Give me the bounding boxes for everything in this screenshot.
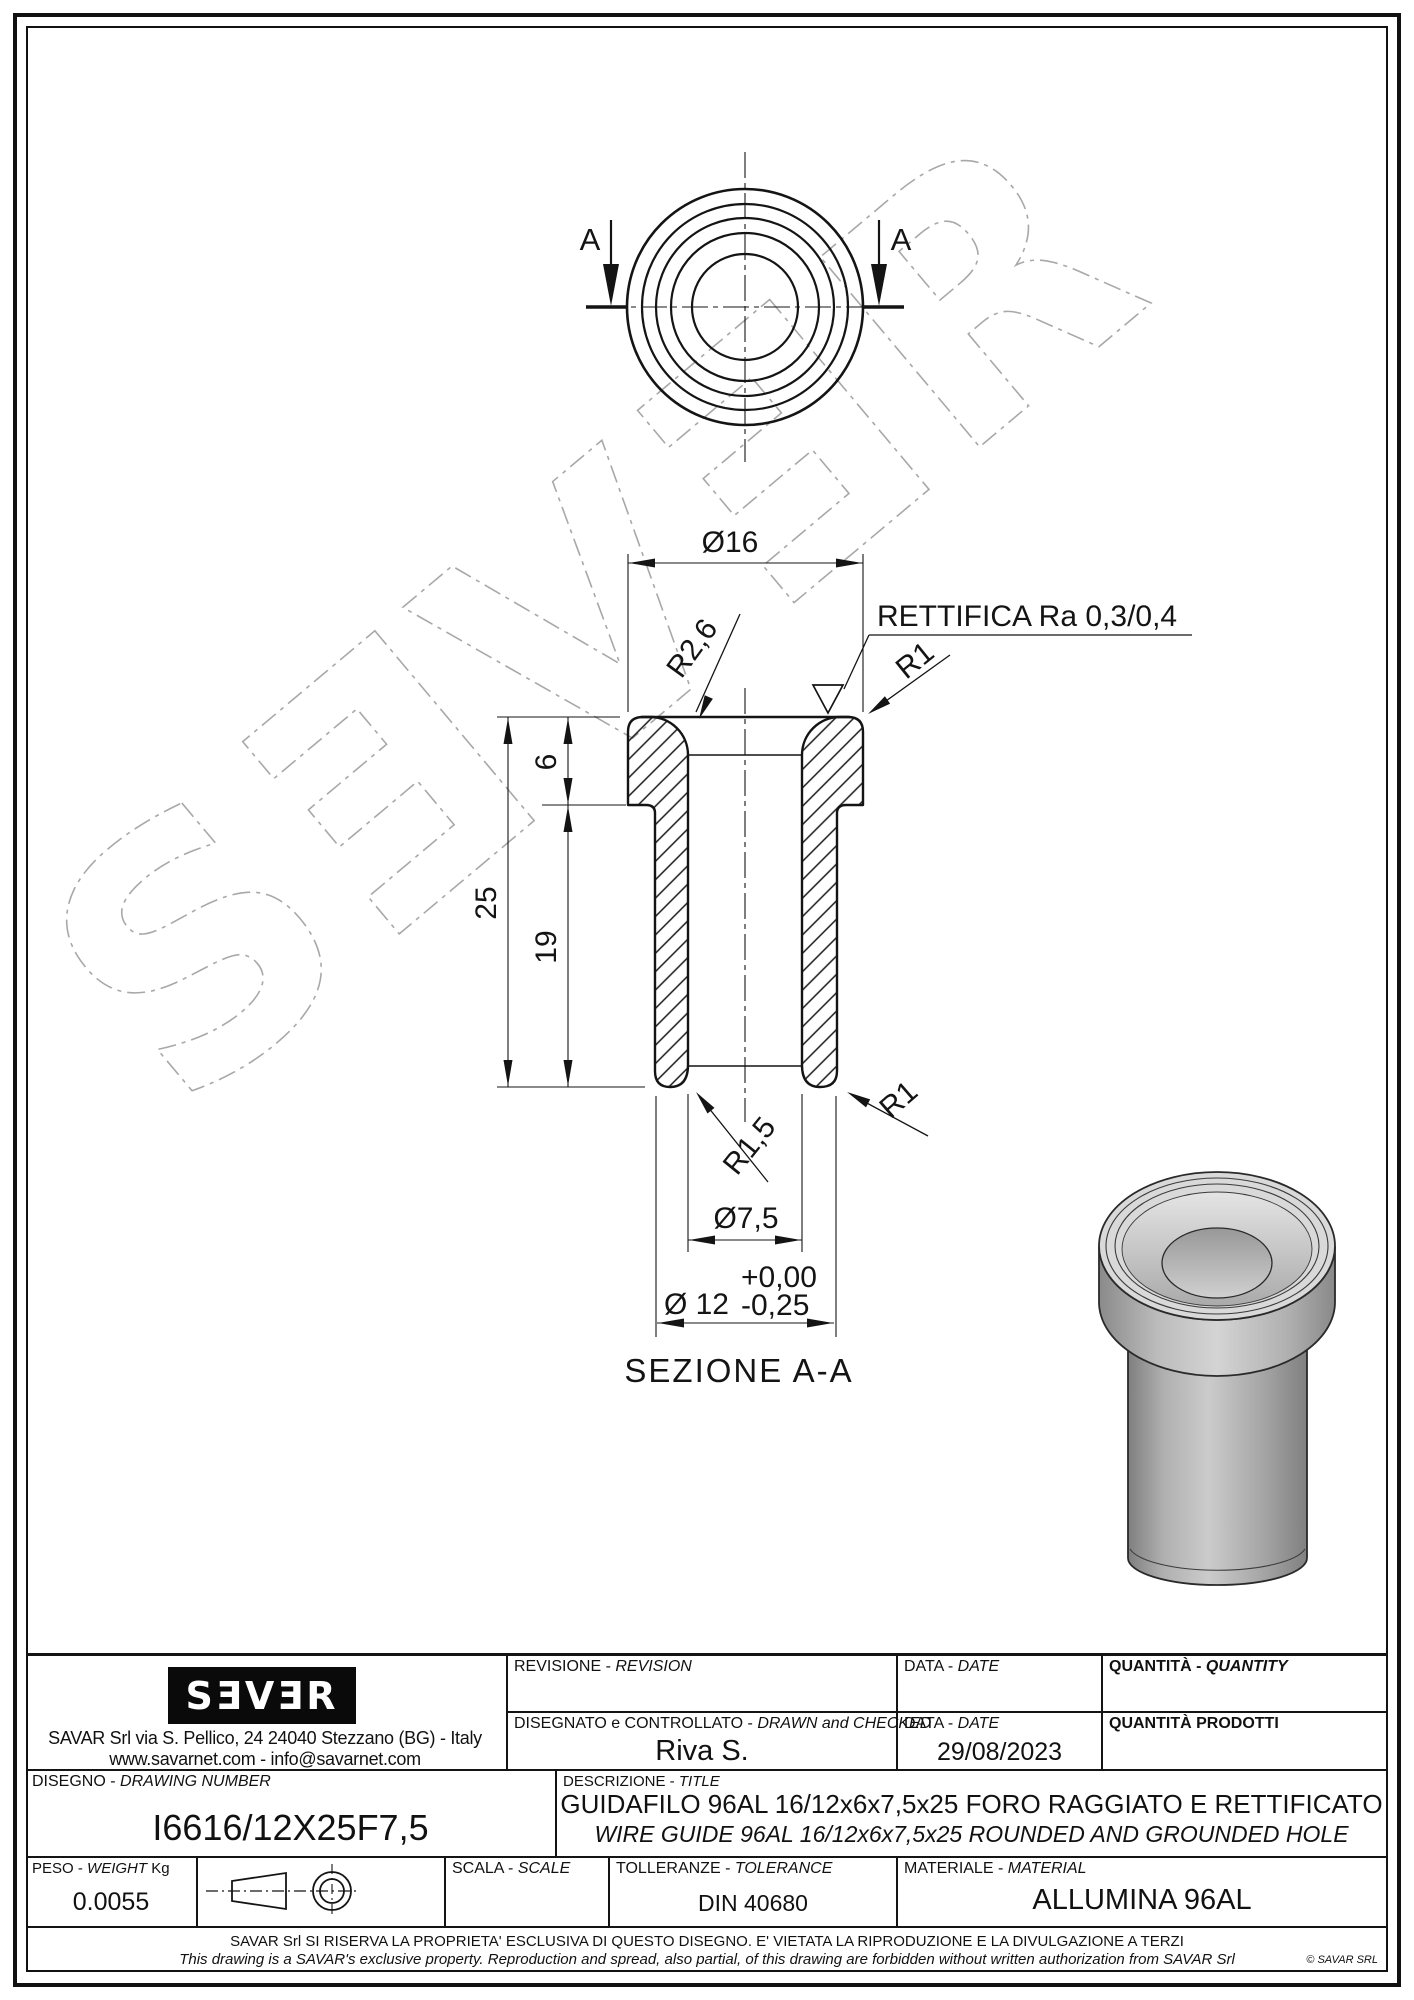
date-top-label: DATA - DATE [904, 1658, 999, 1676]
dim-6-label: 6 [530, 754, 563, 771]
radius-r1-top-label: R1 [890, 636, 941, 686]
drawing-number-cell: DISEGNO - DRAWING NUMBER I6616/12X25F7,5 [26, 1771, 557, 1858]
material-value: ALLUMINA 96AL [898, 1884, 1386, 1917]
leader-r1-5: R1,5 [696, 1092, 782, 1182]
description-label: DESCRIZIONE - TITLE [563, 1773, 720, 1790]
surface-note-text: RETTIFICA Ra 0,3/0,4 [877, 600, 1177, 633]
description-value-it: GUIDAFILO 96AL 16/12x6x7,5x25 FORO RAGGI… [557, 1789, 1386, 1820]
radius-r15-label: R1,5 [717, 1111, 783, 1181]
date-value: 29/08/2023 [898, 1738, 1101, 1767]
material-cell: MATERIALE - MATERIAL ALLUMINA 96AL [898, 1858, 1388, 1928]
tolerance-minus-label: -0,25 [741, 1289, 809, 1322]
description-value-en: WIRE GUIDE 96AL 16/12x6x7,5x25 ROUNDED A… [557, 1821, 1386, 1848]
weight-cell: PESO - WEIGHT Kg 0.0055 [26, 1858, 198, 1928]
company-cell: SƎVƎR SAVAR Srl via S. Pellico, 24 24040… [26, 1656, 508, 1771]
dim-diameter-75-label: Ø7,5 [713, 1202, 778, 1235]
cut-label-left: A [580, 222, 601, 257]
drawn-checked-cell: DISEGNATO e CONTROLLATO - DRAWN and CHEC… [508, 1713, 898, 1771]
cut-label-right: A [891, 222, 912, 257]
dim-25-label: 25 [470, 886, 503, 919]
scale-cell: SCALA - SCALE [446, 1858, 610, 1928]
dim-diameter-16-label: Ø16 [702, 526, 759, 559]
disclaimer-italian: SAVAR Srl SI RISERVA LA PROPRIETA' ESCLU… [26, 1933, 1388, 1950]
render-hole [1162, 1228, 1272, 1298]
section-left-wall [628, 717, 688, 1087]
weight-label: PESO - WEIGHT Kg [32, 1860, 170, 1877]
surface-finish-icon [813, 685, 843, 713]
copyright-note: © SAVAR SRL [1306, 1954, 1378, 1966]
scale-label: SCALA - SCALE [452, 1860, 570, 1878]
material-label: MATERIALE - MATERIAL [904, 1860, 1087, 1878]
tolerance-cell: TOLLERANZE - TOLERANCE DIN 40680 [610, 1858, 898, 1928]
revision-cell: REVISIONE - REVISION [508, 1656, 898, 1713]
leader-r1-bottom: R1 [847, 1075, 928, 1136]
disclaimer-row: SAVAR Srl SI RISERVA LA PROPRIETA' ESCLU… [26, 1928, 1388, 1975]
description-cell: DESCRIZIONE - TITLE GUIDAFILO 96AL 16/12… [557, 1771, 1388, 1858]
first-angle-projection-icon [198, 1858, 442, 1924]
section-caption: SEZIONE A-A [624, 1352, 853, 1389]
disclaimer-english: This drawing is a SAVAR's exclusive prop… [26, 1951, 1388, 1968]
section-right-wall [802, 717, 863, 1087]
drawing-number-value: I6616/12X25F7,5 [26, 1807, 555, 1849]
part-3d-render [1099, 1172, 1335, 1585]
drawn-checked-value: Riva S. [508, 1735, 896, 1768]
dim-diameter-12-label: Ø 12 [664, 1288, 729, 1321]
engineering-drawing-page: { "page": { "watermark_text": "SƎVƎR" },… [0, 0, 1414, 2000]
tolerance-label: TOLLERANZE - TOLERANCE [616, 1860, 832, 1878]
savar-logo-text: SƎVƎR [186, 1674, 339, 1718]
drawn-checked-label: DISEGNATO e CONTROLLATO - DRAWN and CHEC… [514, 1715, 931, 1733]
company-contacts: www.savarnet.com - info@savarnet.com [26, 1749, 504, 1770]
date-cell-top: DATA - DATE [898, 1656, 1103, 1713]
date-cell-bottom: DATA - DATE 29/08/2023 [898, 1713, 1103, 1771]
savar-logo: SƎVƎR [168, 1667, 356, 1724]
dim-19-label: 19 [530, 930, 563, 963]
tolerance-value: DIN 40680 [610, 1890, 896, 1917]
section-arrow-left [603, 264, 619, 306]
drawing-canvas: SƎVƎR A A [0, 0, 1414, 1650]
title-block: SƎVƎR SAVAR Srl via S. Pellico, 24 24040… [26, 1653, 1388, 1972]
quantity-produced-cell: QUANTITÀ PRODOTTI [1103, 1713, 1388, 1771]
quantity-label: QUANTITÀ - QUANTITY [1109, 1658, 1288, 1676]
projection-symbol-cell [198, 1858, 446, 1928]
revision-label: REVISIONE - REVISION [514, 1658, 692, 1676]
radius-r1-bottom-label: R1 [873, 1075, 924, 1125]
date-bottom-label: DATA - DATE [904, 1715, 999, 1733]
leader-r1-top: R1 [868, 636, 950, 714]
drawing-number-label: DISEGNO - DRAWING NUMBER [32, 1773, 271, 1791]
quantity-cell: QUANTITÀ - QUANTITY [1103, 1656, 1388, 1713]
weight-value: 0.0055 [26, 1888, 196, 1917]
company-address: SAVAR Srl via S. Pellico, 24 24040 Stezz… [26, 1728, 504, 1749]
quantity-produced-label: QUANTITÀ PRODOTTI [1109, 1715, 1279, 1733]
section-view [628, 688, 863, 1122]
